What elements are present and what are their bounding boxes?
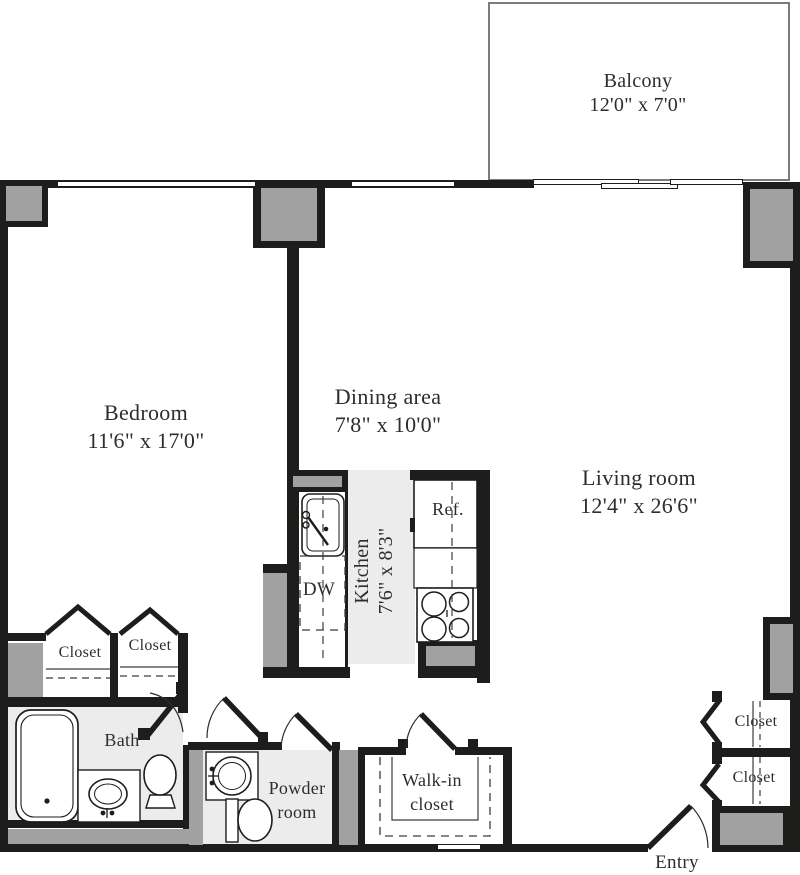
dishwasher-label: DW: [303, 578, 335, 602]
powder-line1: Powder: [269, 776, 326, 800]
bath-floor: [8, 707, 183, 820]
wall-walkin-west: [358, 747, 365, 845]
dining-name: Dining area: [335, 383, 442, 411]
kitchen-dims: 7'6" x 8'3": [374, 528, 398, 615]
wall-bath-south: [8, 820, 188, 828]
wall-bedroom-dining: [287, 245, 299, 678]
wall-fill: [263, 573, 287, 667]
wall-fill: [720, 813, 783, 845]
bifold-door-icon: [703, 764, 719, 802]
stove-burner: [422, 592, 446, 616]
powder-room-label: Powder room: [269, 776, 326, 824]
stove-burner: [422, 617, 446, 641]
powder-line2: room: [269, 800, 326, 824]
wall-hall-cap: [263, 564, 287, 573]
wall-fill: [293, 476, 342, 487]
wall-kitchen-northeast: [410, 470, 483, 480]
bifold-door-icon: [46, 607, 110, 634]
wall-fill: [8, 643, 43, 697]
closet-jamb: [712, 756, 722, 764]
wall-top: [325, 180, 354, 188]
closet-label: Closet: [59, 644, 102, 662]
kitchen-sink-icon: [302, 494, 344, 556]
dining-window: [352, 180, 454, 188]
entry-label: Entry: [655, 851, 699, 875]
closet-label: Closet: [733, 769, 776, 787]
kitchen-sink-inner: [307, 499, 339, 551]
bedroom-window: [58, 180, 255, 188]
walkin-door-jamb: [468, 739, 478, 748]
balcony-label: Balcony 12'0" x 7'0": [589, 69, 686, 117]
closet-label: Closet: [129, 637, 172, 655]
wall-walkin-north-left: [358, 747, 406, 755]
wall-closet-hall-divider: [712, 748, 790, 757]
powder-door-leaf: [296, 714, 332, 750]
dining-label: Dining area 7'8" x 10'0": [335, 383, 442, 439]
walkin-door-jamb: [398, 739, 408, 748]
living-room-label: Living room 12'4" x 26'6": [580, 464, 698, 520]
bath-label: Bath: [104, 728, 139, 752]
counter-edge-line: [345, 492, 348, 667]
living-name: Living room: [580, 464, 698, 492]
walkin-door-leaf: [421, 714, 455, 749]
wall-fill: [8, 829, 196, 844]
stove-icon: [417, 588, 473, 642]
wall-bottom: [0, 844, 648, 852]
kitchen-faucet: [303, 522, 309, 528]
wall-walkin-east: [503, 747, 512, 845]
kitchen-label: Kitchen 7'6" x 8'3": [350, 528, 398, 615]
bedroom-door-hinge-stub: [258, 732, 268, 742]
wall-notch: [438, 845, 480, 849]
door-swing-arc: [281, 714, 296, 749]
balcony-sliding-door: [601, 183, 678, 189]
closet-jamb: [712, 691, 722, 702]
wall-right: [790, 268, 800, 852]
wall-bath-north: [8, 697, 188, 707]
wall-fill: [189, 750, 203, 845]
stove-burner: [450, 619, 469, 638]
bedroom-dims: 11'6" x 17'0": [88, 427, 205, 455]
bifold-door-icon: [703, 701, 719, 743]
dining-dims: 7'8" x 10'0": [335, 411, 442, 439]
stove-burner: [450, 593, 469, 612]
walkin-line2: closet: [402, 792, 462, 816]
wall-fill: [339, 750, 358, 845]
bifold-door-icon: [120, 610, 178, 634]
wall-bedroom-south: [0, 633, 46, 641]
kitchen-sink-drain: [324, 527, 329, 532]
kitchen-faucet: [303, 512, 310, 519]
column-fill: [261, 188, 317, 241]
wall-left: [0, 226, 8, 852]
balcony-name: Balcony: [589, 69, 686, 93]
walkin-closet-label: Walk-in closet: [402, 768, 462, 816]
bath-door-jamb: [176, 682, 188, 694]
closet-label: Closet: [735, 713, 778, 731]
bedroom-name: Bedroom: [88, 399, 205, 427]
wall-powder-north: [188, 742, 282, 750]
kitchen-counter: [414, 548, 477, 588]
floor-plan: Balcony 12'0" x 7'0" Bedroom 11'6" x 17'…: [0, 0, 800, 875]
balcony-sliding-door: [670, 179, 743, 185]
column-fill: [6, 186, 42, 221]
door-swing-arc: [406, 714, 421, 748]
column-fill: [770, 624, 793, 693]
wall-closet-divider: [110, 633, 118, 697]
door-swing-arc: [207, 698, 224, 738]
bath-door-jamb: [138, 728, 150, 740]
wall-kitchen-southwest: [263, 667, 350, 678]
refrigerator-label: Ref.: [432, 497, 464, 521]
walkin-line1: Walk-in: [402, 768, 462, 792]
bedroom-door-leaf: [224, 698, 262, 738]
living-dims: 12'4" x 26'6": [580, 492, 698, 520]
entry-door-leaf: [648, 806, 691, 848]
bedroom-label: Bedroom 11'6" x 17'0": [88, 399, 205, 455]
column-fill: [750, 189, 793, 261]
door-swing-arc: [691, 806, 708, 848]
balcony-dims: 12'0" x 7'0": [589, 93, 686, 117]
wall-top: [454, 180, 534, 188]
kitchen-faucet-spout: [308, 517, 328, 545]
kitchen-name: Kitchen: [350, 528, 374, 615]
wall-fill: [426, 646, 475, 666]
